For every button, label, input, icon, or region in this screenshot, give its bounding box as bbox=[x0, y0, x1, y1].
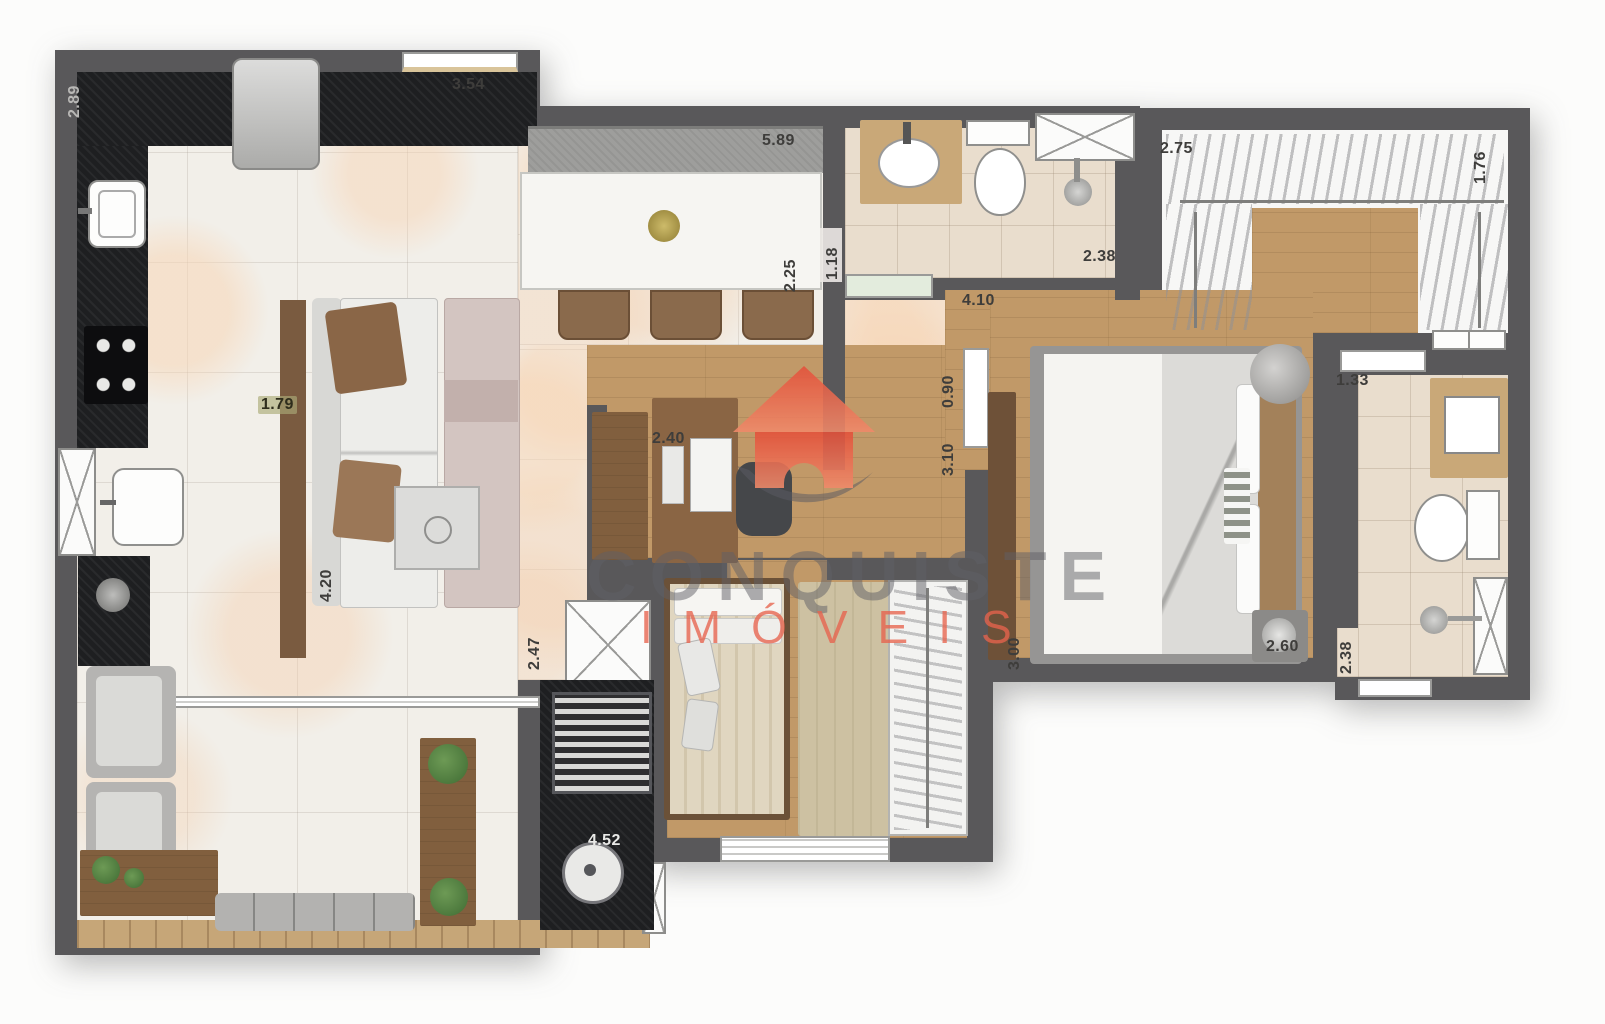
shower1-arm bbox=[1074, 158, 1080, 182]
dim-terrace-width: 4.52 bbox=[588, 832, 621, 850]
toilet2-tank bbox=[1466, 490, 1500, 560]
round-pouf bbox=[1250, 344, 1310, 404]
plant bbox=[92, 856, 120, 884]
dim-dining-depth: 2.25 bbox=[782, 259, 800, 292]
dim-closet-width: 2.75 bbox=[1160, 140, 1193, 158]
terrace-armchair bbox=[86, 666, 176, 778]
dim-master-foot: 2.60 bbox=[1266, 638, 1299, 656]
dim-bath1-width: 2.38 bbox=[1083, 248, 1116, 266]
dim-bath2-door: 1.33 bbox=[1336, 372, 1369, 390]
dim-bath1-entry: 1.18 bbox=[824, 247, 842, 280]
dim-living-front: 5.89 bbox=[762, 132, 795, 150]
shower2-head bbox=[1420, 606, 1448, 634]
plant bbox=[428, 744, 468, 784]
master-striped-throw bbox=[1224, 468, 1250, 544]
armchair-cushion bbox=[96, 676, 162, 766]
terrace-bench bbox=[215, 893, 415, 931]
service-faucet bbox=[100, 500, 116, 505]
dim-office-depth: 3.10 bbox=[940, 443, 958, 476]
sofa-cushion-brown bbox=[325, 301, 408, 394]
bath1-faucet bbox=[903, 122, 911, 144]
dim-bedroom-door: 0.90 bbox=[940, 375, 958, 408]
dining-chair bbox=[742, 290, 814, 340]
closet-rod-right bbox=[1478, 212, 1481, 328]
dim-kitchen-depth: 2.89 bbox=[66, 85, 84, 118]
toilet1-tank bbox=[966, 120, 1030, 146]
dim-sofa-wall: 4.20 bbox=[318, 569, 336, 602]
barbecue-grill bbox=[552, 692, 652, 794]
closet-hangers-left bbox=[1166, 204, 1252, 330]
service-sink bbox=[112, 468, 184, 546]
daybed-blanket bbox=[444, 380, 518, 422]
bath2-sink bbox=[1444, 396, 1500, 454]
coffee-table-decor bbox=[424, 516, 452, 544]
dim-office-width: 2.40 bbox=[652, 430, 685, 448]
closet-rod-top bbox=[1180, 200, 1504, 203]
desk-laptop bbox=[690, 438, 732, 512]
barbecue-sink-drain bbox=[584, 864, 596, 876]
closet-rod-left bbox=[1194, 212, 1197, 328]
dining-chair bbox=[558, 290, 630, 340]
dining-chair bbox=[650, 290, 722, 340]
plant bbox=[124, 868, 144, 888]
dim-bath2-depth: 2.38 bbox=[1338, 641, 1356, 674]
kitchen-sink-basin bbox=[98, 190, 136, 238]
toilet2-bowl bbox=[1414, 494, 1470, 562]
plant bbox=[430, 878, 468, 916]
bath1-sink bbox=[878, 138, 940, 188]
desk-notepad bbox=[662, 446, 684, 504]
shower1-head bbox=[1064, 178, 1092, 206]
kitchen-faucet bbox=[78, 208, 92, 214]
watermark-house-icon bbox=[733, 366, 875, 518]
shower2-arm bbox=[1448, 616, 1482, 621]
sofa-cushion-brown bbox=[332, 459, 402, 543]
service-appliance bbox=[96, 578, 130, 612]
closet-hangers-right bbox=[1420, 204, 1508, 330]
dim-kitchen-pass: 1.79 bbox=[258, 396, 297, 414]
table-centerpiece bbox=[648, 210, 680, 242]
dim-hall-length: 4.10 bbox=[962, 292, 995, 310]
dim-closet-depth: 1.76 bbox=[1472, 151, 1490, 184]
dim-living-depth: 2.47 bbox=[526, 637, 544, 670]
cooktop bbox=[84, 326, 148, 404]
toilet1-bowl bbox=[974, 148, 1026, 216]
fridge bbox=[232, 58, 320, 170]
dim-kitchen-width: 3.54 bbox=[452, 76, 485, 94]
master-headboard bbox=[1258, 366, 1296, 642]
watermark-text-imoveis: IMÓVEIS bbox=[640, 600, 1042, 654]
closet-hangers-top bbox=[1166, 134, 1504, 204]
floor-plan-canvas: 2.89 3.54 5.89 2.25 1.18 2.38 2.75 1.76 … bbox=[0, 0, 1605, 1024]
kitchen-sink bbox=[88, 180, 146, 248]
